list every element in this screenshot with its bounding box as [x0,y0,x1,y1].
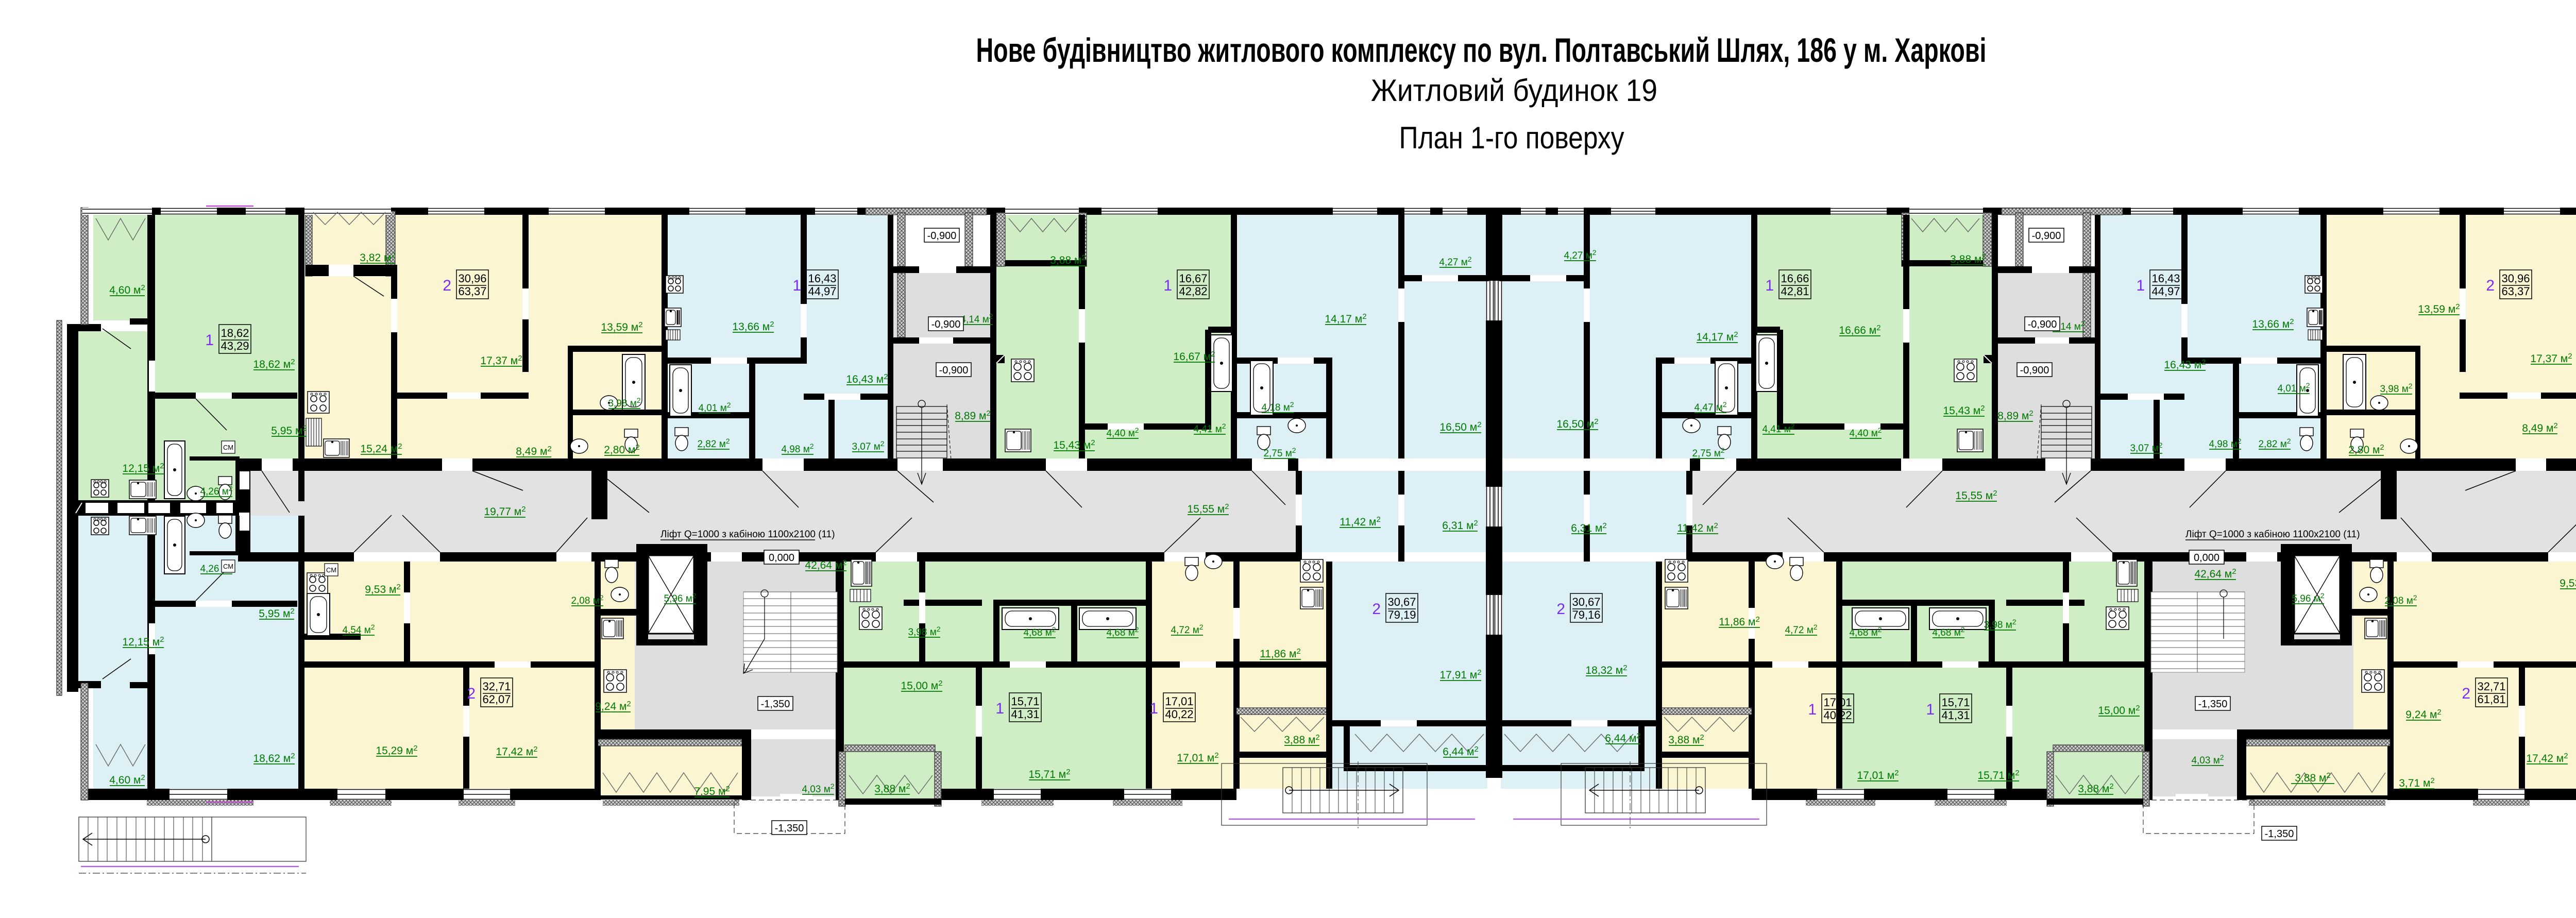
svg-text:2: 2 [467,685,476,702]
svg-text:2: 2 [1556,601,1565,618]
svg-text:16,43: 16,43 [808,272,836,285]
svg-text:18,32 м2: 18,32 м2 [1585,664,1627,676]
svg-text:79,16: 79,16 [1572,608,1600,621]
svg-text:30,96: 30,96 [2501,272,2530,285]
svg-text:6,31 м2: 6,31 м2 [1571,521,1607,534]
svg-text:3,88 м2: 3,88 м2 [1950,252,1986,265]
svg-text:17,01: 17,01 [1165,695,1193,708]
svg-text:16,43: 16,43 [2151,272,2180,285]
svg-text:-0,900: -0,900 [2032,230,2061,242]
svg-text:4,18 м2: 4,18 м2 [1261,400,1294,413]
svg-text:3,98 м2: 3,98 м2 [908,625,940,638]
svg-text:15,29 м2: 15,29 м2 [376,744,417,757]
svg-text:0,000: 0,000 [2194,552,2219,564]
svg-text:0,000: 0,000 [769,552,794,564]
svg-text:7,95 м2: 7,95 м2 [694,785,730,797]
svg-text:2,75 м2: 2,75 м2 [1692,446,1724,459]
svg-text:11,86 м2: 11,86 м2 [1719,615,1760,628]
svg-text:3,88 м2: 3,88 м2 [2295,771,2331,784]
svg-text:2,82 м2: 2,82 м2 [2258,437,2291,450]
svg-text:11,42 м2: 11,42 м2 [1340,515,1381,528]
svg-text:4,41 м2: 4,41 м2 [1193,422,1226,435]
svg-text:44,97: 44,97 [2151,285,2180,298]
svg-text:79,19: 79,19 [1387,608,1416,621]
svg-text:15,71 м2: 15,71 м2 [1028,768,1070,780]
svg-text:42,64 м2: 42,64 м2 [805,558,846,571]
svg-text:1: 1 [792,277,801,294]
svg-text:2: 2 [1372,601,1381,618]
svg-text:Ліфт Q=1000 з кабіною 1100х210: Ліфт Q=1000 з кабіною 1100х2100 (11) [660,529,835,540]
svg-text:План 1-го поверху: План 1-го поверху [1399,121,1624,155]
svg-text:1: 1 [205,332,214,349]
svg-text:12,15 м2: 12,15 м2 [122,635,164,648]
svg-text:4,14 м2: 4,14 м2 [960,312,993,325]
svg-text:30,67: 30,67 [1387,596,1416,608]
svg-text:1: 1 [1926,701,1935,718]
svg-text:СМ: СМ [223,444,233,451]
svg-text:4,98 м2: 4,98 м2 [781,442,814,455]
svg-text:15,71: 15,71 [1011,695,1039,708]
svg-text:16,50 м2: 16,50 м2 [1439,420,1481,433]
svg-text:3,98 м2: 3,98 м2 [1984,618,2016,631]
svg-text:-1,350: -1,350 [2198,699,2228,710]
svg-text:4,60 м2: 4,60 м2 [109,283,145,296]
svg-text:4,68 м2: 4,68 м2 [1106,625,1139,638]
svg-text:17,01 м2: 17,01 м2 [1177,751,1218,764]
svg-text:-0,900: -0,900 [939,365,969,376]
svg-text:40,22: 40,22 [1165,708,1193,721]
svg-text:9,53 м2: 9,53 м2 [365,583,401,596]
svg-text:63,37: 63,37 [2501,285,2530,298]
svg-text:2,80 м2: 2,80 м2 [2348,443,2384,456]
svg-text:2,82 м2: 2,82 м2 [697,437,730,450]
svg-text:4,68 м2: 4,68 м2 [1023,625,1056,638]
svg-text:4,03 м2: 4,03 м2 [802,782,834,795]
svg-text:-0,900: -0,900 [2020,365,2049,376]
svg-text:-1,350: -1,350 [2265,828,2294,840]
svg-text:16,50 м2: 16,50 м2 [1556,417,1598,430]
svg-text:-1,350: -1,350 [775,823,804,834]
svg-text:40,22: 40,22 [1823,709,1852,722]
svg-text:3,88 м2: 3,88 м2 [2078,782,2114,795]
svg-text:30,67: 30,67 [1572,596,1600,608]
svg-text:12,15 м2: 12,15 м2 [122,462,164,474]
svg-text:4,40 м2: 4,40 м2 [1849,426,1882,439]
svg-text:32,71: 32,71 [482,680,511,693]
svg-text:СМ: СМ [223,563,233,570]
svg-text:3,98 м2: 3,98 м2 [608,396,640,409]
svg-text:5,96 м2: 5,96 м2 [2292,591,2324,604]
svg-text:16,66: 16,66 [1781,272,1809,285]
svg-text:17,01 м2: 17,01 м2 [1857,769,1899,781]
svg-text:4,41 м2: 4,41 м2 [1762,422,1794,435]
svg-text:5,95 м2: 5,95 м2 [259,607,295,620]
svg-text:42,64 м2: 42,64 м2 [2194,567,2236,580]
svg-text:43,29: 43,29 [221,339,249,352]
svg-text:-0,900: -0,900 [2028,319,2057,330]
svg-text:8,49 м2: 8,49 м2 [516,445,552,457]
svg-text:3,88 м2: 3,88 м2 [1050,253,1086,266]
svg-text:15,55 м2: 15,55 м2 [1955,489,1997,502]
svg-text:62,07: 62,07 [482,693,511,706]
svg-text:2,75 м2: 2,75 м2 [1263,446,1296,459]
svg-text:2,80 м2: 2,80 м2 [604,443,640,456]
svg-text:17,42 м2: 17,42 м2 [496,745,537,758]
svg-text:18,62: 18,62 [221,327,249,339]
svg-text:15,71 м2: 15,71 м2 [1977,769,2019,781]
svg-text:16,43 м2: 16,43 м2 [846,372,888,385]
svg-text:6,44 м2: 6,44 м2 [1443,745,1479,758]
svg-text:-0,900: -0,900 [931,319,961,330]
svg-text:6,31 м2: 6,31 м2 [1442,519,1478,532]
svg-text:2: 2 [443,277,451,294]
svg-text:15,43 м2: 15,43 м2 [1943,404,1985,417]
svg-text:15,71: 15,71 [1941,696,1970,709]
svg-text:32,71: 32,71 [2477,680,2505,693]
svg-text:Ліфт Q=1000 з кабіною 1100х210: Ліфт Q=1000 з кабіною 1100х2100 (11) [2185,529,2360,540]
svg-text:61,81: 61,81 [2477,693,2505,706]
svg-text:4,27 м2: 4,27 м2 [1439,255,1471,268]
svg-text:9,24 м2: 9,24 м2 [2405,708,2442,721]
svg-text:6,44 м2: 6,44 м2 [1605,732,1641,744]
svg-text:13,59 м2: 13,59 м2 [601,320,642,333]
svg-text:8,89 м2: 8,89 м2 [955,409,991,422]
svg-text:4,68 м2: 4,68 м2 [1849,625,1882,638]
svg-text:3,88 м2: 3,88 м2 [874,782,910,795]
svg-text:17,01: 17,01 [1823,696,1852,709]
svg-text:2,08 м2: 2,08 м2 [571,593,603,606]
svg-text:4,03 м2: 4,03 м2 [2191,753,2224,766]
svg-text:Житловий будинок 19: Житловий будинок 19 [1371,73,1657,108]
svg-text:18,62 м2: 18,62 м2 [253,752,295,764]
svg-text:1: 1 [2136,277,2145,294]
svg-text:8,89 м2: 8,89 м2 [1997,409,2033,422]
svg-text:19,77 м2: 19,77 м2 [484,505,526,518]
svg-text:15,24 м2: 15,24 м2 [360,442,402,455]
svg-text:3,07 м2: 3,07 м2 [2130,441,2162,454]
svg-text:4,54 м2: 4,54 м2 [342,623,375,636]
svg-text:3,82 м2: 3,82 м2 [360,251,396,264]
svg-text:18,62 м2: 18,62 м2 [253,358,295,370]
svg-text:СМ: СМ [326,566,336,574]
svg-text:41,31: 41,31 [1011,708,1039,721]
svg-text:4,72 м2: 4,72 м2 [1171,623,1203,636]
svg-text:3,07 м2: 3,07 м2 [852,439,884,452]
svg-text:4,27 м2: 4,27 м2 [1564,248,1596,261]
svg-text:15,00 м2: 15,00 м2 [2098,704,2140,717]
svg-text:4,47 м2: 4,47 м2 [1694,400,1726,413]
svg-text:2: 2 [2486,277,2495,294]
svg-text:13,59 м2: 13,59 м2 [2418,302,2460,315]
svg-text:42,81: 42,81 [1781,285,1809,298]
svg-text:1: 1 [1149,700,1158,717]
svg-text:-0,900: -0,900 [927,230,957,242]
svg-text:13,66 м2: 13,66 м2 [2252,317,2294,330]
svg-text:15,00 м2: 15,00 м2 [901,679,942,692]
svg-text:17,91 м2: 17,91 м2 [1439,668,1481,681]
svg-text:1: 1 [1808,701,1817,718]
svg-text:4,68 м2: 4,68 м2 [1932,625,1964,638]
svg-text:3,71 м2: 3,71 м2 [2399,776,2435,789]
svg-text:Нове будівництво житлового ком: Нове будівництво житлового комплексу по … [976,31,1987,69]
svg-text:15,55 м2: 15,55 м2 [1187,502,1229,515]
svg-text:4,72 м2: 4,72 м2 [1785,623,1817,636]
svg-text:4,40 м2: 4,40 м2 [1106,426,1139,439]
svg-text:13,66 м2: 13,66 м2 [732,320,774,333]
svg-text:9,24 м2: 9,24 м2 [595,700,631,712]
svg-text:42,82: 42,82 [1179,285,1207,298]
svg-text:30,96: 30,96 [458,272,486,285]
svg-text:44,97: 44,97 [808,285,836,298]
svg-text:14,17 м2: 14,17 м2 [1696,330,1738,343]
svg-text:17,42 м2: 17,42 м2 [2526,752,2568,764]
svg-text:2,08 м2: 2,08 м2 [2384,593,2417,606]
svg-text:11,42 м2: 11,42 м2 [1677,521,1718,534]
svg-text:-1,350: -1,350 [761,699,790,710]
svg-text:4,01 м2: 4,01 м2 [698,401,731,414]
svg-text:17,37 м2: 17,37 м2 [480,354,522,367]
svg-text:1: 1 [1765,277,1774,294]
svg-text:3,98 м2: 3,98 м2 [2380,382,2412,395]
svg-text:63,37: 63,37 [458,285,486,298]
svg-text:15,43 м2: 15,43 м2 [1053,438,1095,451]
svg-text:17,37 м2: 17,37 м2 [2530,352,2572,365]
svg-text:2: 2 [2462,685,2470,702]
svg-text:5,95 м2: 5,95 м2 [271,424,307,437]
svg-text:4,01 м2: 4,01 м2 [2277,381,2310,394]
svg-text:4,26 м2: 4,26 м2 [200,484,232,497]
svg-text:3,88 м2: 3,88 м2 [1284,733,1320,746]
svg-text:4,98 м2: 4,98 м2 [2209,437,2241,450]
svg-text:3,88 м2: 3,88 м2 [1668,733,1704,746]
svg-text:16,67: 16,67 [1179,272,1207,285]
svg-text:1: 1 [995,700,1004,717]
svg-text:5,96 м2: 5,96 м2 [664,591,696,604]
svg-text:9,53 м2: 9,53 м2 [2560,576,2576,589]
svg-text:16,66 м2: 16,66 м2 [1839,324,1880,336]
svg-text:1: 1 [1163,277,1172,294]
svg-text:41,31: 41,31 [1941,709,1970,722]
svg-text:14,17 м2: 14,17 м2 [1325,312,1366,325]
svg-text:16,67 м2: 16,67 м2 [1173,350,1215,363]
svg-text:8,49 м2: 8,49 м2 [2522,421,2558,434]
svg-text:4,60 м2: 4,60 м2 [109,773,145,786]
svg-text:16,43 м2: 16,43 м2 [2164,358,2206,371]
svg-text:11,86 м2: 11,86 м2 [1260,647,1301,660]
